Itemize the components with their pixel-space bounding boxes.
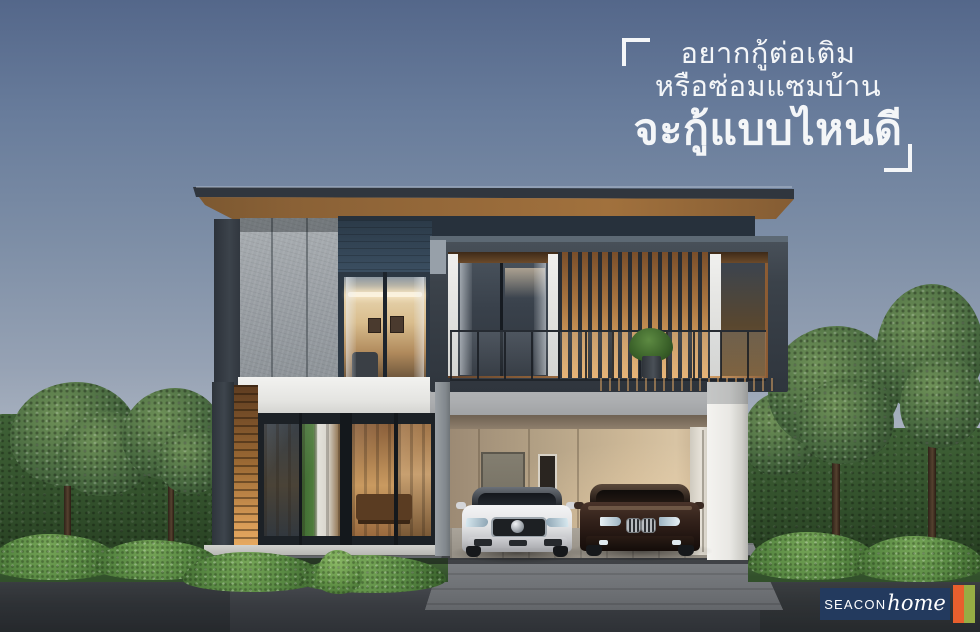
wall-picture-frame bbox=[368, 318, 381, 333]
fog-light bbox=[599, 540, 608, 545]
concrete-panel-wall bbox=[240, 218, 338, 380]
headline-line-1: อยากกู้ต่อเติม bbox=[618, 38, 918, 71]
carport-ceiling bbox=[450, 415, 707, 429]
panel-seam bbox=[306, 218, 308, 380]
door-center-stile bbox=[340, 413, 352, 547]
curtain bbox=[346, 277, 356, 377]
seacon-home-logo: SEACONhome bbox=[820, 584, 975, 624]
logo-orange-bar bbox=[953, 585, 964, 623]
door-mullion bbox=[394, 413, 398, 547]
headlight bbox=[545, 518, 568, 527]
navy-siding-panel bbox=[338, 220, 432, 276]
bumper-intake bbox=[509, 540, 527, 546]
hood-emblem bbox=[511, 520, 524, 533]
plant-pot bbox=[642, 356, 661, 378]
tree-canopy-right-2b bbox=[900, 356, 980, 448]
door-mullion bbox=[299, 413, 302, 547]
white-pillar-right bbox=[707, 382, 748, 560]
balcony-top-face bbox=[430, 236, 788, 242]
advert-canvas: อยากกู้ต่อเติม หรือซ่อมแซมบ้าน จะกู้แบบไ… bbox=[0, 0, 980, 632]
corner-bracket-bottom-right bbox=[884, 144, 912, 172]
headlight bbox=[600, 517, 621, 526]
interior-bench-silhouette bbox=[356, 494, 412, 520]
kidney-grille bbox=[626, 518, 641, 533]
bumper-intake bbox=[474, 539, 492, 546]
balcony-corner-highlight bbox=[430, 240, 446, 274]
wood-slat-wall bbox=[234, 385, 258, 561]
wheel bbox=[678, 545, 694, 556]
glass-pane bbox=[264, 424, 299, 536]
logo-green-bar bbox=[964, 585, 975, 623]
logo-text-seacon: SEACON bbox=[824, 597, 886, 612]
side-door-edge bbox=[702, 430, 704, 552]
panel-seam bbox=[271, 218, 273, 380]
balcony-underside-glow bbox=[600, 378, 775, 391]
pillar-shadow bbox=[707, 382, 748, 404]
headlight bbox=[659, 517, 680, 526]
glass-railing bbox=[450, 330, 766, 381]
bumper-intake bbox=[544, 539, 562, 546]
kidney-grille bbox=[641, 518, 656, 533]
roof-edge-highlight bbox=[196, 186, 792, 188]
logo-text-home: home bbox=[887, 591, 946, 615]
wheel bbox=[586, 545, 602, 556]
headline-block: อยากกู้ต่อเติม หรือซ่อมแซมบ้าน จะกู้แบบไ… bbox=[618, 38, 918, 154]
wall-picture-frame bbox=[390, 316, 404, 333]
hood-highlight bbox=[588, 506, 692, 510]
logo-navy-box: SEACONhome bbox=[820, 588, 950, 620]
window-mullion bbox=[383, 272, 387, 378]
wheel bbox=[553, 546, 568, 557]
upper-corner-pillar bbox=[214, 219, 240, 385]
wall-seam bbox=[577, 429, 579, 530]
eave-shadow bbox=[240, 218, 338, 232]
ground-corner-pillar bbox=[212, 382, 234, 568]
curtain bbox=[414, 277, 424, 377]
headlight bbox=[465, 518, 488, 527]
wheel bbox=[466, 546, 481, 557]
headline-line-2: หรือซ่อมแซมบ้าน bbox=[618, 71, 918, 104]
carport-back-window bbox=[538, 454, 557, 491]
headline-line-3: จะกู้แบบไหนดี bbox=[618, 106, 918, 154]
stone-pillar bbox=[435, 382, 450, 556]
glass-pane-courtyard bbox=[302, 424, 340, 536]
